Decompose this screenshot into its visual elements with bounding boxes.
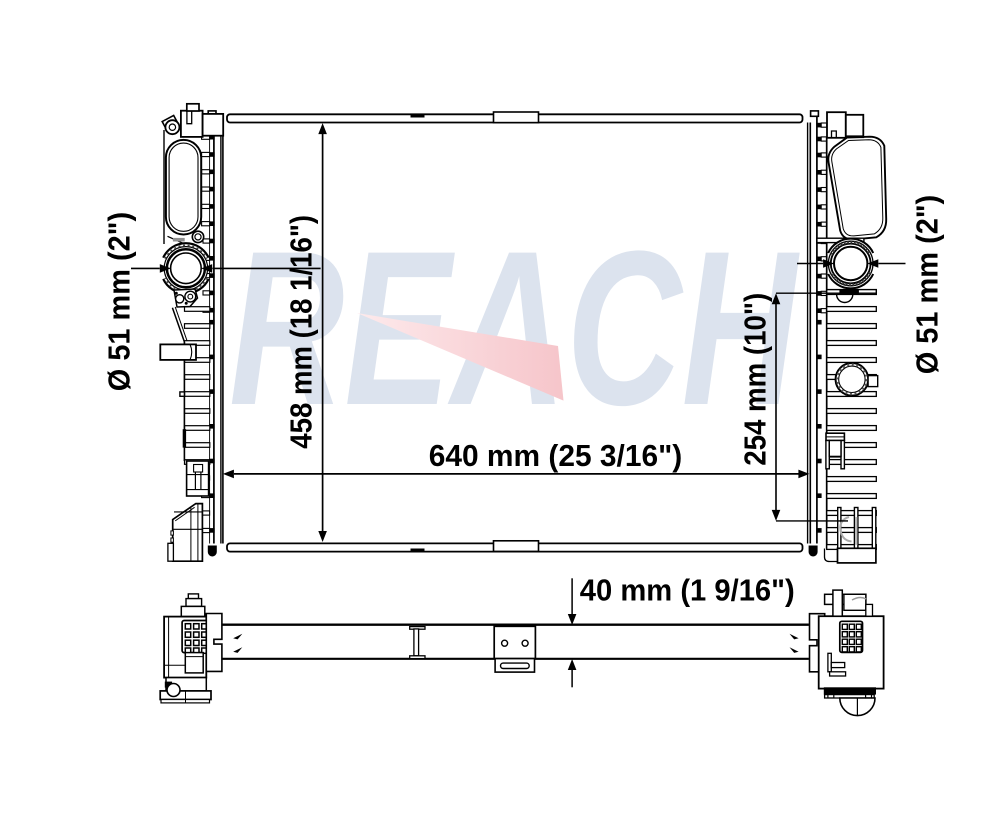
svg-text:Ø 51 mm (2"): Ø 51 mm (2")	[101, 212, 136, 391]
svg-text:640 mm (25 3/16"): 640 mm (25 3/16")	[429, 438, 683, 473]
svg-text:458 mm (18 1/16"): 458 mm (18 1/16")	[284, 215, 319, 449]
svg-text:40 mm (1 9/16"): 40 mm (1 9/16")	[580, 573, 795, 608]
svg-text:Ø 51 mm (2"): Ø 51 mm (2")	[910, 195, 945, 375]
svg-text:254 mm (10"): 254 mm (10")	[738, 293, 773, 466]
